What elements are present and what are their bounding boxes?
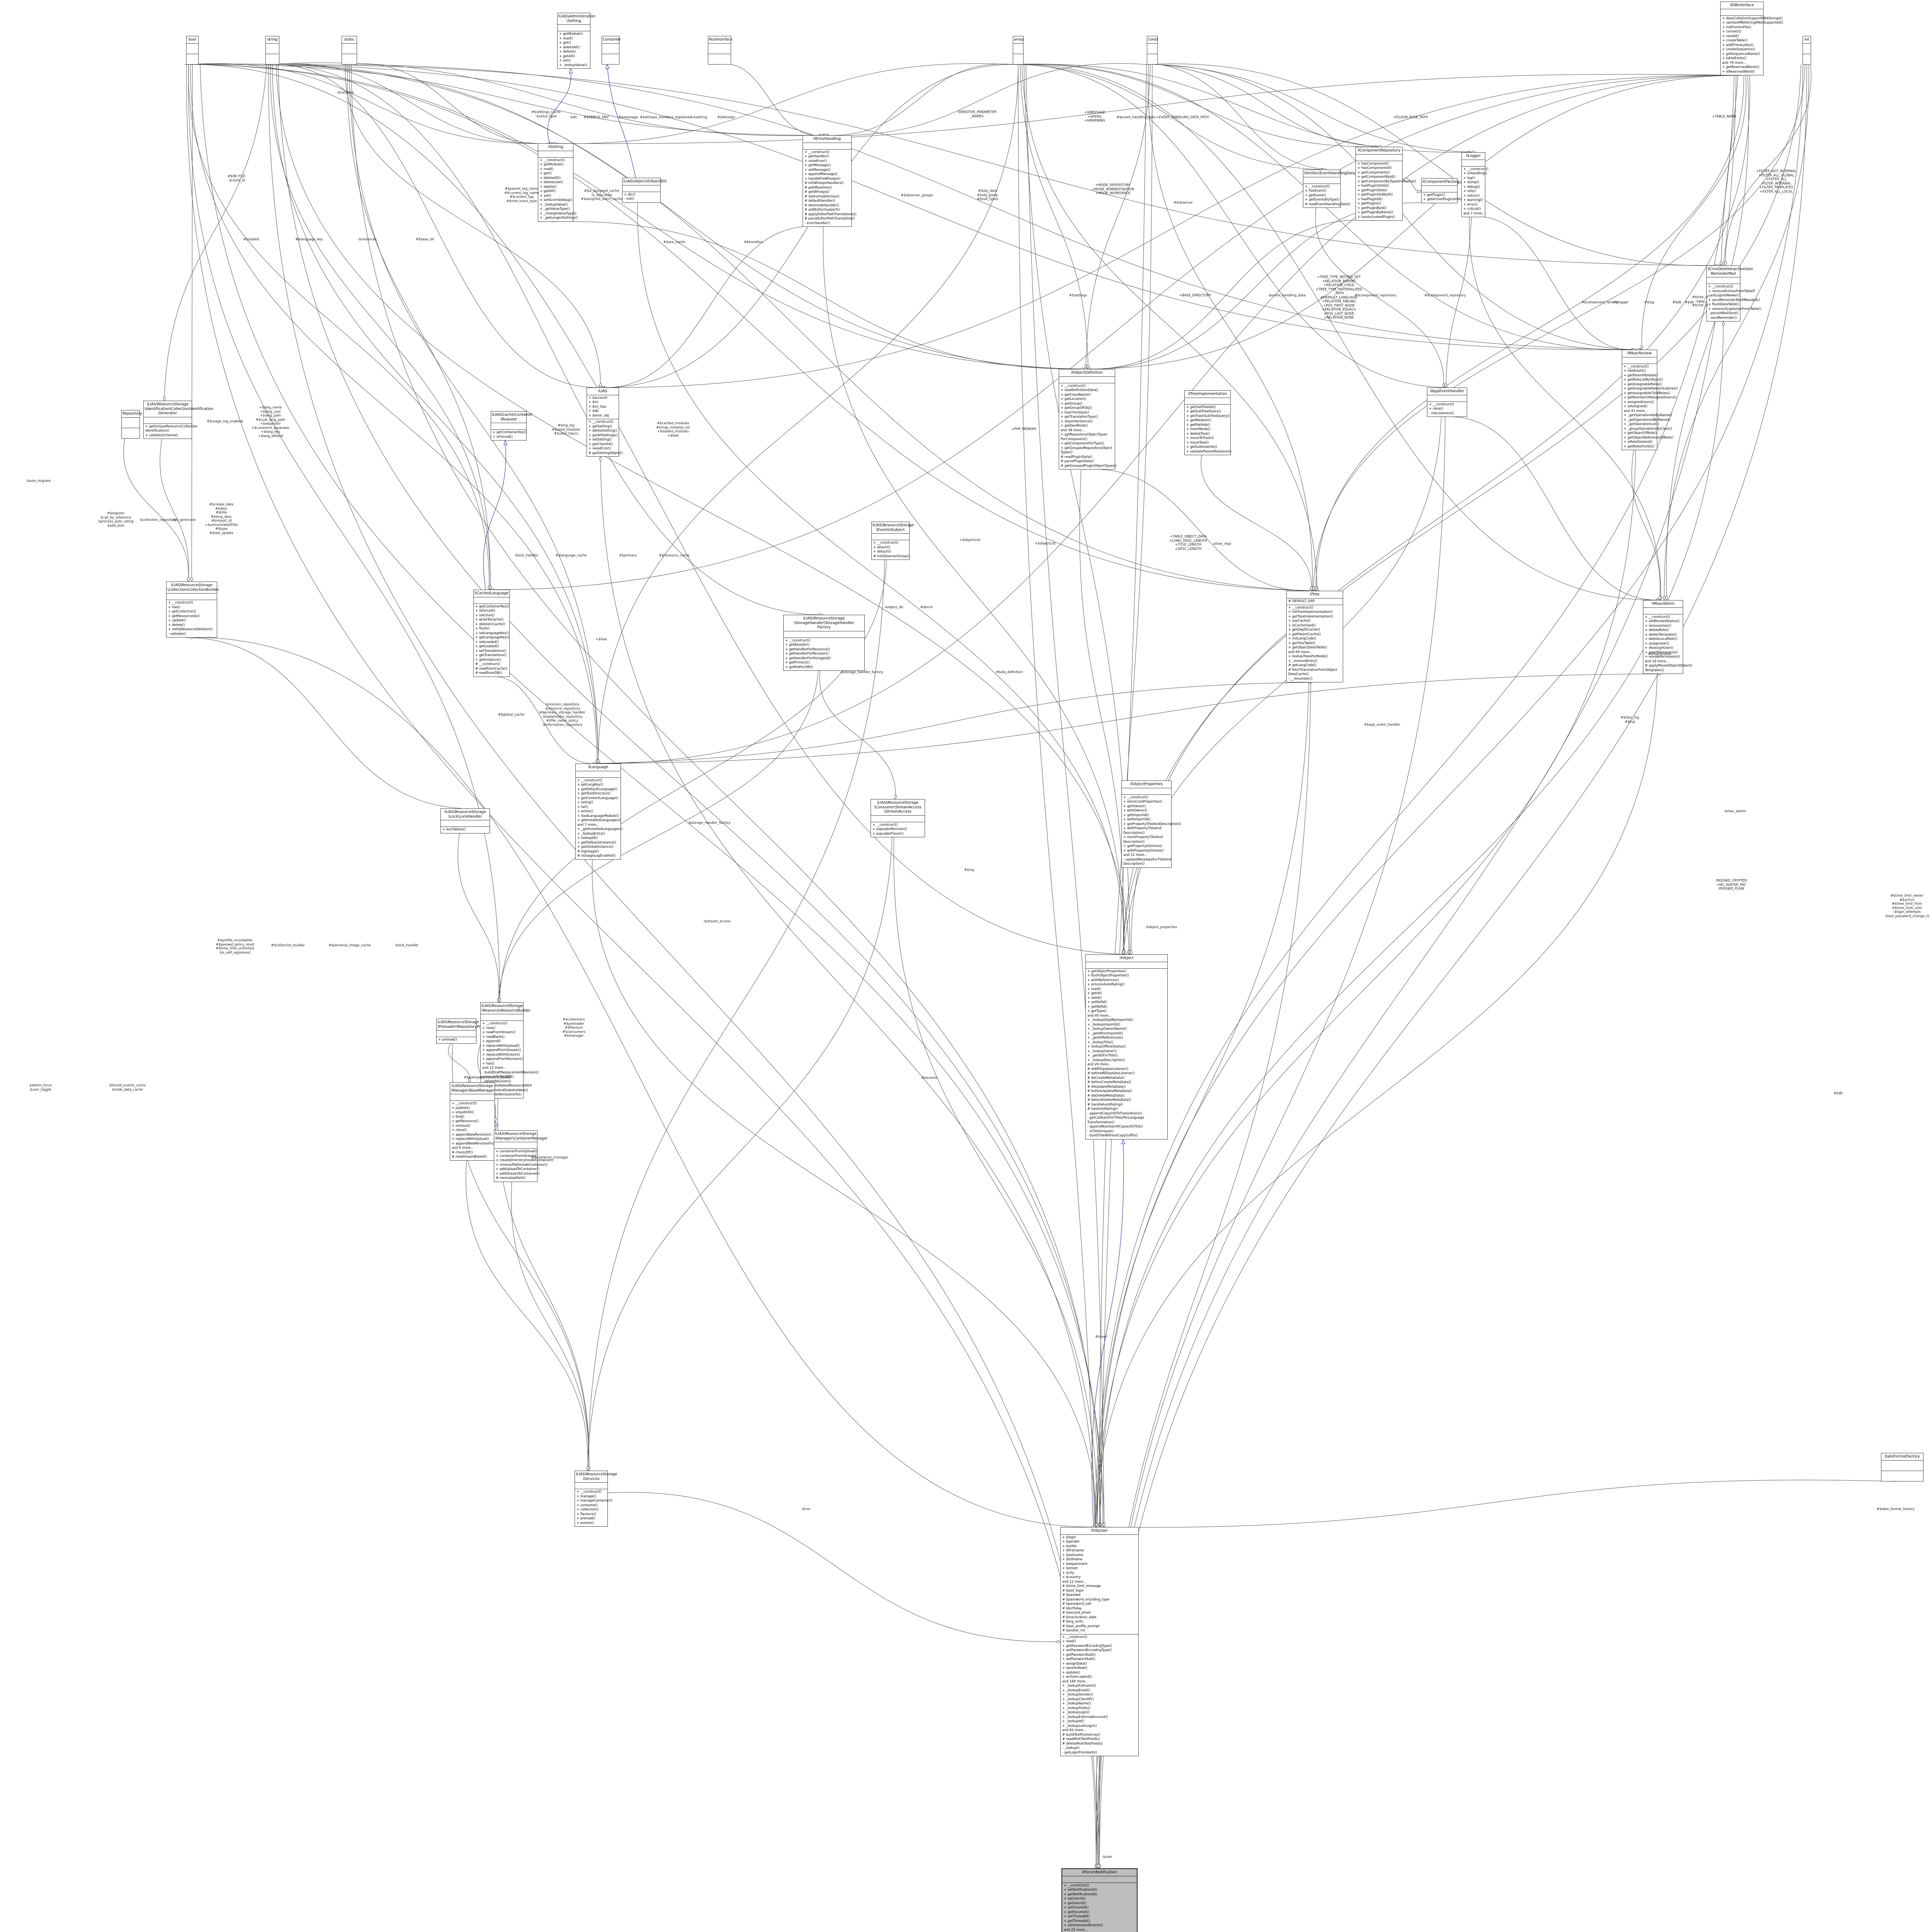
edge-label: +$lang_name +$lang_user +$lang_path #$cu… [252,406,289,438]
method-line: and 12 more... [482,1066,522,1071]
edge-const-errorHandling [824,63,1147,135]
method-line: + getPluginById() [1357,206,1401,211]
edge-label: #$db [1672,301,1681,305]
class-attributes [622,185,660,192]
method-line: + __construct() [804,150,850,155]
method-line: # checkZIP() [452,1151,493,1155]
method-line: + delete() [540,185,571,190]
method-line: + getPathIds() [1186,423,1229,428]
method-line: + moveToTrash() [1186,436,1229,441]
method-line: # doUpdateMetaData() [1087,1085,1166,1090]
method-line: + getPluginSlotById() [1357,193,1401,197]
edge-label: $admin_force $user_toggle [29,1084,52,1092]
method-line: Types() [1061,451,1113,455]
class-box-runInterface[interactable]: RunInterface [708,36,731,65]
class-attributes [187,44,198,54]
class-title: ILIAS\ResourceStorage\StorageHandler\Sto… [784,615,864,631]
class-title: bool [187,36,198,44]
method-line: + read() [1087,987,1166,992]
method-line: + getSequenceName() [1722,52,1762,57]
class-box-objDef[interactable]: ilObjectDefinition+ __construct()+ readD… [1059,369,1115,469]
method-line: + __construct() [1064,1884,1135,1888]
attribute-line: + $gender [1062,1540,1137,1544]
collaboration-diagram-canvas: { "diagram": { "title": "ilForumNotifica… [0,0,1932,1932]
method-line: - updateMetadataForTitleAnd [1123,858,1170,862]
class-methods: + __construct()+ getLangKey()+ getDefaul… [576,778,621,859]
edge-array-objDef [1020,65,1088,369]
method-line: + remove() [452,1124,493,1129]
method-line: + _lookupName() [1062,1702,1137,1706]
class-box-ILIAS[interactable]: ILIAS+ $account+ $ini+ $ini_ilias+ $db+ … [587,388,619,457]
method-line: + getSubTreeQuery() [1186,410,1229,414]
class-box-collBuilder[interactable]: ILIAS\ResourceStorage\Collection\Collect… [166,582,217,638]
method-line: + _lookupEmail() [1062,1689,1137,1693]
method-line: + append() [482,1039,522,1044]
method-line: + getNotificationId() [1064,1893,1135,1897]
method-line: + preload() [438,1038,474,1043]
class-methods: + __construct()+ publish()+ unpublish()+… [450,1101,495,1160]
edge-label: #$usage_log_enabled [207,420,243,424]
class-attributes [1622,357,1657,364]
edge-label: -$rbac_admin [1724,810,1746,814]
attribute-line: # $last_profile_prompt [1062,1624,1137,1629]
class-methods [187,54,198,64]
method-line: + exists() [577,810,619,814]
method-line: + initLangCode() [1288,637,1341,641]
method-line: + __construct() [1624,365,1655,369]
class-attributes [576,771,621,778]
edge-rbacReview-ilObjUser [1097,450,1636,1527]
method-line: + getModule() [540,163,571,167]
method-line: + preload() [577,1517,606,1521]
class-title: ILIAS\ResourceStorage\Consumer\StreamAcc… [871,799,925,816]
edge-layer [0,0,1932,1932]
method-line: + replaceWithUpload() [482,1044,522,1049]
class-attributes [491,423,526,430]
method-line: + getOwner() [1123,804,1170,809]
method-line: + getClientId() [588,442,617,447]
method-line: + has() [168,605,215,610]
method-line: Identification() [145,429,190,434]
method-line: + _lookupClientIP() [1062,1697,1137,1702]
class-attributes [1803,44,1811,54]
method-line: # beforeCreateMetaData() [1087,1080,1166,1085]
class-title: ILIAS\ResourceStorage\Resource\ResourceB… [481,1003,523,1014]
method-line: and 43 more... [1624,409,1655,414]
attribute-line: + $ini [588,400,617,405]
class-box-componentFactory[interactable]: ilComponentFactory+ getPlugin()+ getActi… [1421,178,1458,203]
class-attributes [1147,44,1157,54]
class-box-dateFormatFactory[interactable]: DateFormatFactory [1881,1453,1923,1481]
attribute-line: # DEFAULT_GAP [1288,599,1341,604]
attribute-line: + $db [588,409,617,414]
edge-dateFormatFactory-ilObjUser [1096,1480,1897,1527]
method-line: + getDefaultLanguage() [577,787,619,792]
edge-collIdGen-collBuilder [160,439,189,582]
method-line: # addEditorSupport() [804,208,850,213]
method-line: + getAll() [559,54,588,59]
method-line: + setUserId() [1064,1897,1135,1901]
edge-const-objDef [1086,65,1150,369]
class-box-lockHandler[interactable]: ILIAS\ResourceStorage\Lock\LockHandler+ … [440,808,490,833]
class-attributes: # DEFAULT_GAP [1287,599,1343,605]
class-box-services[interactable]: ILIAS\ResourceStorage\Services+ __constr… [575,1471,608,1527]
edge-label: #$use_cache [663,240,685,245]
method-line: + appendFromRevision() [482,1057,522,1062]
edge-errorHandling-ilObject [823,227,1124,954]
class-title: ilDBInterface [1721,2,1763,9]
method-line: + initFromIniFile() [1722,26,1762,30]
class-title: ILIAS\ResourceStorage\Lock\LockHandler [441,809,490,820]
class-box-storageHandlerFactory[interactable]: ILIAS\ResourceStorage\StorageHandler\Sto… [783,615,865,671]
class-box-collIdGen[interactable]: ILIAS\ResourceStorage\Identification\Col… [143,401,192,439]
class-box-ilObject[interactable]: ilObject+ getObjectProperties()+ flushOb… [1085,954,1168,1139]
class-attributes [437,1031,476,1037]
method-line: + connect() [1722,30,1762,34]
edge-label: #$message [619,116,638,120]
method-line: - buildTitleWithoutCopySuffix() [1087,1134,1166,1138]
class-methods [122,428,139,438]
method-line: # getGroupedPluginObjectTypes() [1061,464,1113,469]
class-box-ilTree[interactable]: ilTree# DEFAULT_GAP+ __construct()+ init… [1286,591,1343,682]
attribute-line: + $login [1062,1536,1137,1540]
method-line: + find() [452,1115,493,1120]
class-box-treeImpl[interactable]: ilTreeImplementation+ getSubTreeIds()+ g… [1184,390,1231,455]
method-line: + getPlugins() [1357,202,1401,206]
method-line: + getReservedWords() [1722,65,1762,70]
class-methods: + __construct()+ setNotificationId()+ ge… [1062,1883,1137,1932]
edge-streamAccess-services [588,837,892,1471]
class-methods: + dic()- init() [622,192,660,202]
method-line: + getRepositoryObjectTypes [1061,433,1113,437]
method-line: + delete() [559,50,588,54]
method-line: + appendFromStream() [482,1048,522,1053]
method-line: # getLangCode() [1288,663,1341,668]
class-methods: + __construct()+ removeEntriesFromTableI… [1707,284,1740,321]
edge-label: -SENSITIVE_PARAMETER _NAMES [957,111,997,119]
attribute-line: # $birthday [1062,1607,1137,1611]
method-line: + __construct() [1708,285,1738,289]
method-line: + getTranslations() [475,653,508,658]
class-methods: + getObjectProperties()+ flushObjectProp… [1086,969,1167,1139]
edge-label: #$create_date #$desc #$title #$long_desc… [205,503,238,535]
class-attributes [1881,1461,1923,1471]
method-line: and 12 more... [1123,853,1170,858]
class-attributes [494,1142,537,1149]
method-line: + _getValueType() [540,207,571,212]
method-line: # newStreamBased() [452,1155,493,1160]
class-box-containerManager[interactable]: ILIAS\ResourceStorage\Manager\ContainerM… [494,1130,537,1182]
attribute-line: # $last_login [1062,1589,1137,1594]
class-methods: + __construct()+ raise()- initListeners(… [1427,402,1467,417]
method-line: # doMDUpdateListener() [1087,1067,1166,1072]
edge-lockHandler-collBuilder [189,638,461,808]
class-box-forumNotification[interactable]: ilForumNotification+ __construct()+ setN… [1061,1868,1138,1932]
method-line: + getDepthCache() [1288,628,1341,633]
class-methods: + doesCollationSupportMB4Strings()+ sani… [1721,16,1763,75]
method-line: + setScormDebug() [540,198,571,203]
class-attributes [708,44,731,54]
class-box-db[interactable]: ilDBInterface+ doesCollationSupportMB4St… [1720,2,1764,75]
class-box-artifactEHD[interactable]: ilArtifactEventHandlingData+ __construct… [1303,170,1341,208]
method-line: + __construct() [168,601,215,605]
method-line: # readFromDB() [475,671,508,676]
attribute-line: # $passwd [1062,1593,1137,1598]
method-line: + hasCheckbox() [1061,411,1113,415]
edge-streamAccess-ilObjUser [894,837,1097,1527]
method-line: + __construct() [1123,796,1170,800]
edge-logger-appEventHandler [1446,217,1471,388]
method-line: + setRefId() [1087,1000,1166,1005]
class-box-container[interactable]: Container [602,36,619,65]
method-line: # beforeMDUpdateListener() [1087,1071,1166,1076]
method-line: + getObjectReferenceOfRole() [1624,436,1655,440]
method-line: # beforeUpdateMetaData() [1087,1089,1166,1094]
edge-appEventHandler-forumNotification [1099,417,1446,1868]
edge-label: +TREE_TYPE_NESTED_SET +RELATION_PARENT +… [1316,275,1362,320]
method-line: + withOwner() [1123,809,1170,813]
edge-label: #$component_factory [1582,301,1618,305]
class-box-rbacReview[interactable]: ilRbacReview+ __construct()+ roleExists(… [1622,350,1657,450]
class-box-int[interactable]: int [1803,36,1811,65]
class-box-objProps[interactable]: ilObjectProperties+ __construct()+ store… [1121,781,1172,868]
class-box-logger[interactable]: ilLogger+ __construct()+ isHandling()+ l… [1461,152,1485,217]
edge-string-cronDelete [272,65,1723,265]
edge-label: -$id_generator [172,518,196,522]
class-attributes [558,25,590,31]
method-line: # readFromCache() [475,667,508,672]
class-box-baseManager[interactable]: ILIAS\ResourceStorage\Manager\BaseManage… [450,1082,495,1161]
class-title: ILIAS\ResourceStorage\Services [575,1471,607,1483]
class-title: ILIAS\ResourceStorage\Manager\ContainerM… [494,1131,537,1142]
method-line: # applyMovedObjectDidactic [1645,664,1681,668]
method-line: + setMessage() [804,168,850,173]
class-title: ilErrorHandling [803,136,851,143]
method-line: + notice() [1463,194,1483,199]
method-line: + insertNode() [1186,427,1229,432]
class-box-const[interactable]: const [1147,36,1158,65]
class-attributes [144,417,192,424]
method-line: + __construct() [1061,384,1113,389]
method-line: + addStreamToContainer() [496,1172,536,1177]
class-box-repository[interactable]: Repository [121,410,140,439]
method-line: + getCollection() [168,610,215,614]
class-box-ilSetting[interactable]: ilSetting+ __construct()+ getModule()+ r… [538,143,573,222]
method-line: + containerFromStream() [496,1154,536,1159]
method-line: - __renumber() [1288,677,1341,682]
method-line: + handlePreWhoops() [804,177,850,182]
class-attributes [1185,398,1230,405]
edge-label: +TABLE_OBJECT_DATA +LONG_DESC_LENGTH +TI… [1169,535,1207,551]
method-line: + __construct() [452,1102,493,1106]
method-line: + getLanguageKey() [475,636,508,640]
method-line: + getRidForURI() [785,665,863,670]
method-line: + _changeValueType() [540,212,571,216]
edge-label: +PLUGIN_BASE_PATH [1393,116,1428,120]
class-box-cronDelete[interactable]: ilCronDeleteInactiveUserReminderMail+ __… [1706,265,1740,321]
method-line: # devmodeHandler() [804,204,850,208]
method-line: + clone() [452,1128,493,1133]
method-line: + isCacheUsed() [1288,624,1341,628]
method-line: + assignUser() [1645,642,1681,646]
class-box-cachedLanguage[interactable]: ilCachedLanguage+ getContainerKey()+ isF… [473,590,510,677]
class-box-appEventHandler[interactable]: ilAppEventHandler+ __construct()+ raise(… [1427,388,1467,417]
class-title: ilObjectProperties [1122,781,1171,788]
method-line: + getRolesForIDs() [1624,445,1655,449]
method-line: + hasPluginId() [1357,197,1401,202]
edge-bool-ilSetting [187,63,552,143]
method-line: + getType() [1087,1009,1166,1014]
edge-label: +$objectList [1035,542,1056,546]
method-line: # applyEditorPathTranslations() [804,213,850,217]
method-line: + getActivePluginsInSlot() [1423,197,1456,202]
method-line: - _lookup() [1062,1746,1137,1751]
method-line: - sendReminder() [1708,316,1738,321]
method-line: + createTable() [1722,39,1762,43]
attribute-line: + $fullname [1062,1558,1137,1562]
method-line: + getGroup() [1061,402,1113,406]
edge-label: #$obj_data #$obj_group #$sub_types [977,189,998,201]
class-box-streamAccess[interactable]: ILIAS\ResourceStorage\Consumer\StreamAcc… [871,799,925,837]
method-line: + collection() [577,1508,606,1512]
class-methods: + preload() [437,1037,476,1043]
class-box-errorHandling[interactable]: ilErrorHandling+ __construct()+ getHandl… [803,135,852,227]
method-line: + setTranslations() [475,649,508,654]
attribute-line: + $country [1062,1575,1137,1580]
method-line: + read() [559,37,588,41]
method-line: + error() [1463,203,1483,207]
class-box-componentRepo[interactable]: ilComponentRepository+ hasComponent()+ h… [1355,147,1403,221]
method-line: + moveTree() [1186,441,1229,446]
class-title: Repository [122,410,139,418]
class-attributes [1013,44,1023,54]
method-line: + isHandling() [1463,172,1483,176]
edge-componentFactory-objDef [1083,203,1434,369]
edge-label: #$base_dir [416,238,434,242]
edge-const-ilTree [1148,65,1312,591]
edge-label: #$whoops [717,116,735,120]
class-attributes [481,1014,523,1021]
method-line: # parsePluginData() [1061,459,1113,464]
method-line: + getTextDirection() [577,792,619,796]
edge-string-ilSetting [267,63,552,143]
edge-static-ilObjUser [351,65,1101,1527]
method-line: + getLocation() [1061,397,1113,402]
method-line: + getPropertyTitleAndDescription() [1123,822,1170,827]
method-line: + __construct() [1463,167,1483,172]
edge-static-ilSetting [344,63,552,143]
class-methods: + lockTables() [441,827,490,833]
edge-label: #$language_cache [555,554,587,558]
method-line: + stopInheritance() [1061,420,1113,424]
class-attributes [575,1483,607,1489]
class-methods [342,54,357,64]
edge-label: +TABLE_NAME [1712,115,1736,119]
method-line: - buildDraftReplacementRevision() [482,1071,522,1075]
class-box-array[interactable]: array [1013,36,1024,65]
method-line: # isUsageLogEnabled() [577,854,619,859]
edge-bool-forumNotification [187,65,1096,1868]
method-line: + getSubtreeInfo() [1186,445,1229,450]
edge-array-logger [1014,64,1471,152]
class-box-static[interactable]: static [342,36,357,65]
method-line: + getInstalledLanguages() [577,818,619,823]
method-line: + getImportId() [1123,813,1170,818]
class-title: array [1013,36,1023,44]
method-line: + writeAccepted() [1062,1675,1137,1680]
class-methods: + __construct()+ getHandler()+ raiseErro… [803,150,851,227]
method-line: + __construct() [1288,606,1341,611]
attribute-line: + $error_obj [588,414,617,418]
edge-label: #$profile_incomplete #$passwd_policy_res… [216,939,254,955]
method-line: + validateScheme() [145,434,190,438]
edge-label: +PHP_MEMORY [1011,427,1036,432]
method-line: # __construct() [475,662,508,667]
method-line: Templates() [1645,668,1681,673]
class-attributes [474,597,509,604]
class-box-objectDIC[interactable]: ILIAS\Object\ilObjectDIC+ dic()- init() [622,178,661,203]
class-box-bool[interactable]: bool [186,36,199,65]
class-box-eventsSubject[interactable]: ILIAS\ResourceStorage\Events\Subject+ __… [871,522,910,560]
class-box-adminSetting[interactable]: ILIAS\Administration\Setting+ getModule(… [557,13,590,69]
edge-array-rbacAdmin [1012,65,1660,600]
method-line: + manage() [577,1495,606,1499]
class-box-string[interactable]: string [265,36,279,65]
class-title: ILIAS\Object\ilObjectDIC [622,178,660,185]
class-attributes [1062,1876,1137,1883]
method-line: and 69 more... [1288,650,1341,655]
method-line: + getUserId() [1064,1901,1135,1906]
method-line: + getDevMode() [1061,424,1113,429]
edge-eventsSubject-services [588,560,885,1471]
method-line: + nextId() [1722,34,1762,39]
class-box-ilObjUser[interactable]: ilObjUser+ $login+ $gender+ $utitle+ $fi… [1060,1527,1139,1756]
class-box-ilLanguage[interactable]: ilLanguage+ __construct()+ getLangKey()+… [575,764,621,860]
method-line: + getPropertyIsOnline() [1123,844,1170,849]
class-attributes [1643,608,1683,614]
method-line: + getLoaded() [475,645,508,649]
class-attributes [872,534,909,540]
method-line: + _lookupOwnerName() [1087,1027,1166,1032]
edge-bool-rbacReview [185,64,1635,350]
class-title: ilArtifactEventHandlingData [1303,170,1340,177]
method-line: + readDefinitionData() [1061,388,1113,393]
class-attributes [784,631,864,638]
class-box-repoPreloader[interactable]: ILIAS\ResourceStorage\Preloader\Reposito… [436,1019,476,1044]
edge-label: -PASSWD_CRYPTED +NO_AVATAR_RID -PASSWD_P… [1715,879,1747,891]
method-line: + _getOperationIdByName() [1624,418,1655,423]
method-line: + getRefId() [1087,1005,1166,1010]
class-box-rbacAdmin[interactable]: ilRbacAdmin+ __construct()+ setBlockedSt… [1643,600,1683,674]
method-line: + getPrimary() [785,661,863,665]
edge-label: -$collection_repository [139,518,177,522]
method-line: + lookupTreesForNode() [1288,655,1341,659]
method-line: + getContainerKey() [493,430,525,435]
method-line: + flavours() [577,1512,606,1517]
method-line: + getTreeImplementation() [1288,615,1341,619]
edge-lockHandler-resourceBuilder [458,833,499,1002]
method-line: + loadLanguageModule() [577,814,619,819]
class-box-cacheRequest[interactable]: ILIAS\Cache\Container\Request+ getContai… [491,411,527,440]
method-line: Transformation() [1087,1121,1166,1125]
edge-label: #$time_limit_owner #$active #$time_limit… [1884,894,1929,918]
class-methods: + __construct()+ manage()+ manageContain… [575,1489,607,1526]
method-line: + hasPluginSlotId() [1357,184,1401,189]
edge-db-ILIAS [600,75,1738,388]
method-line: + getModule() [559,32,588,37]
edge-ilObjUser-cronDelete [1100,321,1724,1527]
method-line: + useCache() [1288,619,1341,624]
